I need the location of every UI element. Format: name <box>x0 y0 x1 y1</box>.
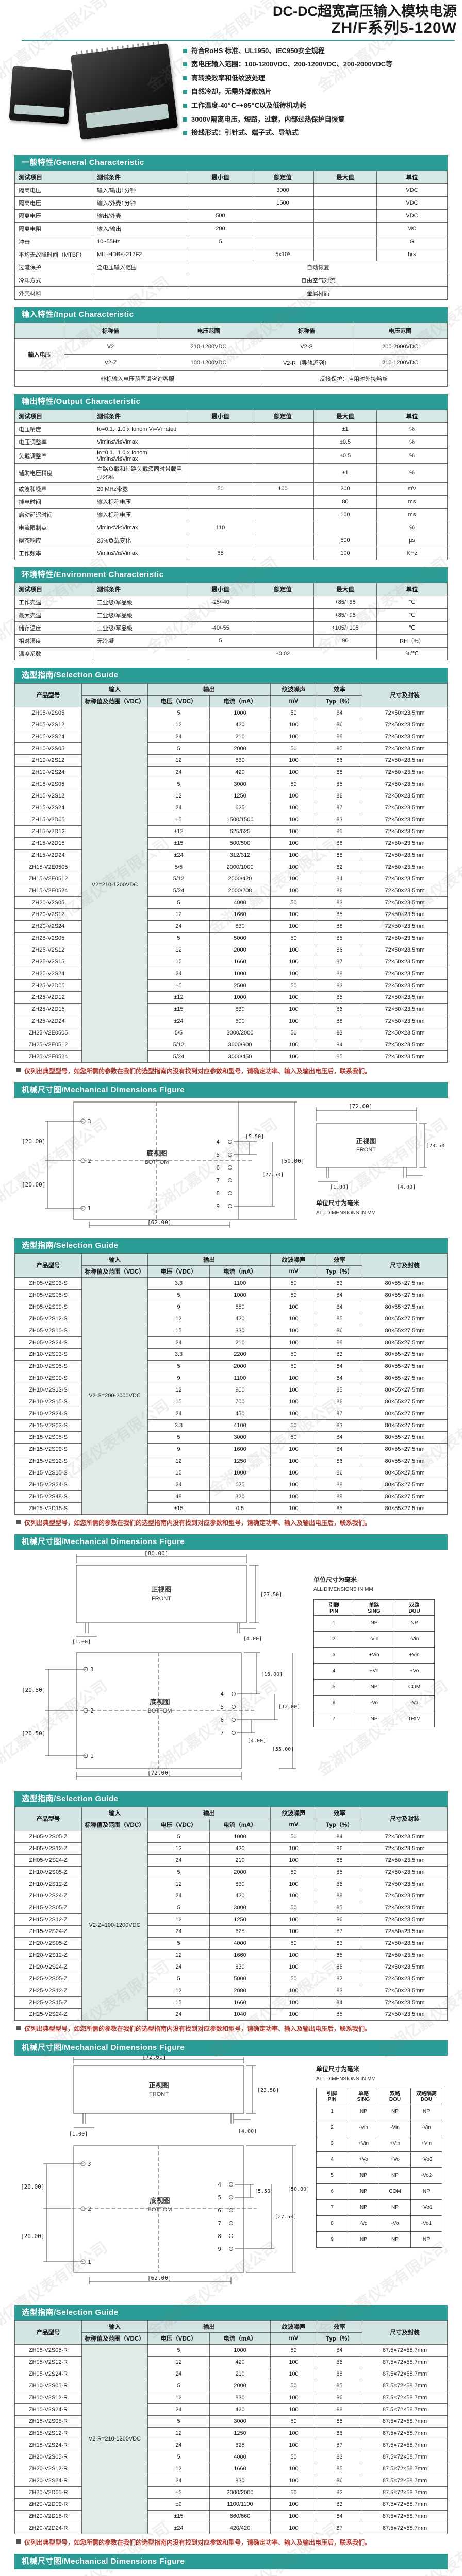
table-cell: NP <box>379 2199 411 2215</box>
col-header: 产品型号 <box>15 2320 82 2344</box>
table-cell: 200 <box>314 482 377 495</box>
table-cell: ZH05-V2S24-S <box>15 1336 82 1348</box>
table-cell: 100 <box>271 2356 317 2368</box>
table-cell: 72×50×23.5mm <box>362 825 448 837</box>
table-row: ZH20-V2S24248301008872×50×23.5mm <box>15 920 448 932</box>
svg-text:[62.00]: [62.00] <box>147 1219 171 1226</box>
mech-figure-4: [58.70] 单位尺寸为毫米 ALL DIMENSIONS IN MM ZHX… <box>14 2569 448 2576</box>
table-row: V2-Z100-1200VDCV2-R（导轨系列）210-1200VDC <box>15 354 448 370</box>
table-cell: 1 <box>314 1615 354 1631</box>
table-cell: 100 <box>271 944 317 956</box>
table-row: ZH15-V2D05±51500/15001008372×50×23.5mm <box>15 814 448 825</box>
table-cell: ZH15-V2S12-Z <box>15 1913 82 1925</box>
table-cell: 100 <box>271 1467 317 1479</box>
feature-text: 工作温度-40℃~+85℃以及低待机功耗 <box>191 101 306 110</box>
table-cell: 72×50×23.5mm <box>362 1842 448 1854</box>
svg-text:3: 3 <box>90 1666 94 1673</box>
table-row: 工作频率Vimin≤Vi≤Vimax65100KHz <box>15 547 448 560</box>
table-row: ZH05-V2S24-S242101008880×55×27.5mm <box>15 1336 448 1348</box>
table-cell: 210-1200VDC <box>353 354 448 370</box>
section-title: 环境特性/Environment Characteristic <box>22 570 164 579</box>
table-cell: ZH25-V2D12 <box>15 991 82 1003</box>
table-cell: +Vo <box>379 2151 411 2167</box>
table-cell: ±1 <box>314 463 377 482</box>
table-cell: 外壳材料 <box>15 286 93 299</box>
table-cell: 87 <box>317 1925 362 1937</box>
table-cell: % <box>377 521 448 534</box>
col-header: 标称值及范围（VDC） <box>82 2332 148 2344</box>
table-row: 冲击10~55Hz5G <box>15 235 448 248</box>
table-cell: KHz <box>377 547 448 560</box>
table-cell: ZH20-V2S12-Z <box>15 1949 82 1961</box>
table-cell: 50 <box>271 1419 317 1431</box>
table-cell: 3.3 <box>148 1419 210 1431</box>
table-cell: 1100/1100 <box>210 2498 271 2510</box>
table-cell: V2=210-1200VDC <box>82 707 148 1062</box>
table-cell: 1660 <box>210 1949 271 1961</box>
table-cell: 320 <box>210 1490 271 1502</box>
svg-text:[4.00]: [4.00] <box>243 1636 262 1642</box>
svg-text:ALL DIMENSIONS IN MM: ALL DIMENSIONS IN MM <box>316 1210 376 1216</box>
table-cell: 20 MHz带宽 <box>93 482 189 495</box>
table-row: 4+Vo+Vo <box>314 1663 435 1679</box>
table-row: 纹波和噪声20 MHz带宽50100200mV <box>15 482 448 495</box>
col-header: 最大值 <box>314 410 377 422</box>
section-header-mechanical: 机械尺寸图/Mechanical Dimensions Figure <box>14 1082 448 1098</box>
mech-figure-3: [72.00] [23.50] 正视图 FRONT [1.00] [4.00] … <box>14 2056 448 2298</box>
table-cell: ±5 <box>148 979 210 991</box>
table-cell: ±0.5 <box>314 435 377 448</box>
table-cell: 100 <box>271 1842 317 1854</box>
table-cell: 420 <box>210 766 271 778</box>
table-row: 隔离电阻输入/输出200MΩ <box>15 222 448 235</box>
table-row: ZH15-V2S12-R1212501008687.5×72×58.7mm <box>15 2427 448 2439</box>
table-cell: 87.5×72×58.7mm <box>362 2356 448 2368</box>
table-row: ZH20-V2S24-R248301008687.5×72×58.7mm <box>15 2475 448 2486</box>
table-header-row: 产品型号 输入 输出 纹波噪声 效率 尺寸及封装 <box>15 2320 448 2332</box>
table-cell: 72×50×23.5mm <box>362 742 448 754</box>
table-cell: ZH15-V2S12-S <box>15 1455 82 1467</box>
table-row: 隔离电压输入/输出1分钟3000VDC <box>15 183 448 196</box>
table-cell: 100 <box>271 1985 317 1996</box>
table-cell: V2-Z <box>64 354 157 370</box>
table-cell: 87.5×72×58.7mm <box>362 2427 448 2439</box>
table-cell <box>189 248 252 261</box>
table-cell: 625 <box>210 802 271 814</box>
table-cell: 88 <box>317 1336 362 1348</box>
table-cell: 87.5×72×58.7mm <box>362 2486 448 2498</box>
table-row: ZH20-V2D09-R±91100/11001008387.5×72×58.7… <box>15 2498 448 2510</box>
table-cell: 84 <box>317 1360 362 1372</box>
svg-text:7: 7 <box>220 1730 224 1736</box>
table-cell: 相对湿度 <box>15 634 93 647</box>
col-header: 单位 <box>377 583 448 596</box>
table-cell: ℃ <box>377 621 448 634</box>
table-cell: 12 <box>148 1949 210 1961</box>
col-header: 纹波噪声 <box>271 2320 317 2332</box>
table-cell: ±15 <box>148 1502 210 1514</box>
table-cell: 50 <box>271 1937 317 1949</box>
section-title: 一般特性/General Characteristic <box>22 158 144 167</box>
table-header-row: 测试项目 测试条件 最小值 额定值 最大值 单位 <box>15 171 448 183</box>
svg-text:6: 6 <box>220 1717 224 1723</box>
col-header: 测试条件 <box>93 410 189 422</box>
table-cell <box>252 435 314 448</box>
col-header: 输入 <box>82 1807 148 1819</box>
table-cell: G <box>377 235 448 248</box>
table-cell: -25/-40 <box>189 596 252 608</box>
table-cell <box>189 422 252 435</box>
table-cell: 83 <box>317 1348 362 1360</box>
table-cell <box>252 448 314 463</box>
svg-text:4: 4 <box>218 2181 221 2188</box>
table-cell: 12 <box>148 2427 210 2439</box>
table-cell: 50 <box>271 896 317 908</box>
table-row: ZH25-V2D15±158301008672×50×23.5mm <box>15 1003 448 1015</box>
table-cell: 无冷凝 <box>93 634 189 647</box>
feature-text: 高转换效率和低纹波处理 <box>191 74 265 82</box>
table-row: ZH25-V2S15-Z1516601008472×50×23.5mm <box>15 1996 448 2008</box>
environment-characteristics-table: 测试项目 测试条件 最小值 额定值 最大值 单位 工作壳温工业级/军品级-25/… <box>14 583 448 660</box>
table-cell: 2000/2000 <box>210 2486 271 2498</box>
table-cell: +Vin <box>411 2136 442 2151</box>
table-cell: hrs <box>377 248 448 261</box>
table-cell: mV <box>377 482 448 495</box>
table-cell: 3000 <box>210 1902 271 1913</box>
table-cell: 500 <box>314 534 377 547</box>
table-cell: TRIM <box>394 1711 435 1727</box>
col-header: 标称值 <box>260 323 353 338</box>
selection-guide-table-4: 产品型号 输入 输出 纹波噪声 效率 尺寸及封装 标称值及范围（VDC） 电压（… <box>14 2320 448 2534</box>
svg-text:[80.00]: [80.00] <box>144 1550 168 1557</box>
table-cell: 100 <box>271 1878 317 1890</box>
general-characteristics-table: 测试项目 测试条件 最小值 额定值 最大值 单位 隔离电压输入/输出1分钟300… <box>14 171 448 300</box>
table-cell: 88 <box>317 849 362 861</box>
table-cell: 工业级/军品级 <box>93 596 189 608</box>
table-cell: 100 <box>271 1384 317 1396</box>
table-cell: 72×50×23.5mm <box>362 1015 448 1027</box>
table-cell: 72×50×23.5mm <box>362 1866 448 1878</box>
table-cell: 非标输入电压范围请咨询客服 <box>15 370 260 386</box>
feature-item: 接线形式：引针式、端子式、导轨式 <box>183 129 454 137</box>
table-cell: 50 <box>271 707 317 719</box>
col-header: 输出 <box>148 1253 271 1265</box>
table-row: ZH25-V2D24±245001008872×50×23.5mm <box>15 1015 448 1027</box>
table-cell: ZH05-V2S24-R <box>15 2368 82 2380</box>
table-cell: 72×50×23.5mm <box>362 861 448 873</box>
table-cell: 100 <box>271 2008 317 2020</box>
table-row: 平均无故障时间（MTBF）MIL-HDBK-217F25x10⁵hrs <box>15 248 448 261</box>
table-cell: 500/500 <box>210 837 271 849</box>
svg-text:9: 9 <box>218 2246 221 2252</box>
table-row: ZH10-V2S12-R128301008687.5×72×58.7mm <box>15 2392 448 2403</box>
table-cell: ZH05-V2S12-S <box>15 1313 82 1325</box>
section-header-environment: 环境特性/Environment Characteristic <box>14 567 448 583</box>
table-cell: 100 <box>271 1890 317 1902</box>
table-cell: ZH20-V2S24 <box>15 920 82 932</box>
input-characteristics-table: 标称值 电压范围 标称值 电压范围 输入电压V2210-1200VDCV2-S2… <box>14 323 448 387</box>
table-row: ZH05-V2S09-S95501008480×55×27.5mm <box>15 1301 448 1313</box>
table-cell: 50 <box>271 1348 317 1360</box>
table-row: 瞬态响应25%负载变化500µs <box>15 534 448 547</box>
datasheet-page: DC-DC超宽高压输入模块电源 ZH/F系列5-120W 符合RoHS 标准、U… <box>0 0 462 2576</box>
table-cell: 隔离电压 <box>15 183 93 196</box>
table-row: 2-Vin-Vin <box>314 1631 435 1647</box>
section-header-mechanical: 机械尺寸图/Mechanical Dimensions Figure <box>14 2040 448 2056</box>
table-cell: ZH15-V2S09-S <box>15 1443 82 1455</box>
table-cell: 330 <box>210 1325 271 1336</box>
table-cell: ZH25-V2D15 <box>15 1003 82 1015</box>
table-row: ZH15-V2E05055/52000/10001008272×50×23.5m… <box>15 861 448 873</box>
col-header: 输出 <box>148 2320 271 2332</box>
section-header-selection: 选型指南/Selection Guide <box>14 668 448 683</box>
table-cell: 5 <box>148 778 210 790</box>
table-cell: 84 <box>317 1372 362 1384</box>
table-cell: 830 <box>210 1961 271 1973</box>
table-cell: 72×50×23.5mm <box>362 1039 448 1050</box>
table-cell <box>93 286 189 299</box>
feature-item: 宽电压输入范围：100-1200VDC、200-1200VDC、200-2000… <box>183 60 454 69</box>
table-cell: RH（%） <box>377 634 448 647</box>
table-cell <box>189 183 252 196</box>
table-cell: 72×50×23.5mm <box>362 1878 448 1890</box>
col-header: mV <box>271 1819 317 1831</box>
table-cell: 72×50×23.5mm <box>362 1937 448 1949</box>
table-cell: ZH15-V2D12 <box>15 825 82 837</box>
col-header: 额定值 <box>252 171 314 183</box>
table-cell: 1040 <box>210 2008 271 2020</box>
table-row: 冷却方式自由空气对流 <box>15 274 448 286</box>
table-cell: ZH20-V2S24-Z <box>15 1961 82 1973</box>
table-cell: 100 <box>271 1455 317 1467</box>
table-cell: 2000 <box>210 742 271 754</box>
svg-text:2: 2 <box>88 2206 91 2212</box>
col-header: 最小值 <box>189 171 252 183</box>
table-row: 过流保护全电压输入范围自动恢复 <box>15 261 448 274</box>
table-cell: ZH05-V2S12-Z <box>15 1842 82 1854</box>
table-cell: 200-2000VDC <box>353 338 448 354</box>
table-cell: 83 <box>317 1937 362 1949</box>
table-cell: 87.5×72×58.7mm <box>362 2451 448 2463</box>
table-row: ZH20-V2S0554000508372×50×23.5mm <box>15 896 448 908</box>
table-cell: 1 <box>317 2104 348 2120</box>
table-cell: +Vin <box>348 2136 379 2151</box>
section-mechanical-3: 机械尺寸图/Mechanical Dimensions Figure [72.0… <box>14 2040 448 2298</box>
table-row: ZH10-V2S05-S52000508480×55×27.5mm <box>15 1360 448 1372</box>
table-cell: 15 <box>148 1996 210 2008</box>
table-cell: 3 <box>317 2136 348 2151</box>
table-cell: 掉电时间 <box>15 495 93 508</box>
table-cell: 86 <box>317 1961 362 1973</box>
table-cell: 输入/输出 <box>93 222 189 235</box>
svg-text:[72.00]: [72.00] <box>142 2056 166 2060</box>
table-cell: ±24 <box>148 849 210 861</box>
table-cell: 625 <box>210 1925 271 1937</box>
table-cell: MIL-HDBK-217F2 <box>93 248 189 261</box>
table-cell: 2000 <box>210 944 271 956</box>
table-cell: ZH20-V2S05 <box>15 896 82 908</box>
table-header-row: 测试项目 测试条件 最小值 额定值 最大值 单位 <box>15 410 448 422</box>
table-cell: 9 <box>148 1443 210 1455</box>
table-cell: ZH20-V2S12-R <box>15 2463 82 2475</box>
table-row: ZH25-V2S05-Z55000508272×50×23.5mm <box>15 1973 448 1985</box>
table-cell: 2000/208 <box>210 885 271 896</box>
table-cell: 72×50×23.5mm <box>362 1925 448 1937</box>
table-cell: ZH15-V2E0512 <box>15 873 82 885</box>
section-selection-guide-3: 选型指南/Selection Guide 产品型号 输入 输出 纹波噪声 效率 … <box>14 1791 448 2021</box>
table-cell: 50 <box>271 2380 317 2392</box>
table-cell <box>189 448 252 463</box>
col-header: 标称值 <box>64 323 157 338</box>
table-cell: ZH20-V2D05-R <box>15 2486 82 2498</box>
table-cell: ZH25-V2E0505 <box>15 1027 82 1039</box>
table-cell: COM <box>379 2183 411 2199</box>
table-cell: ±1 <box>314 422 377 435</box>
table-cell: 84 <box>317 873 362 885</box>
section-input: 输入特性/Input Characteristic 标称值 电压范围 标称值 电… <box>14 307 448 387</box>
table-cell: 500 <box>189 209 252 222</box>
col-header: 标称值及范围（VDC） <box>82 1819 148 1831</box>
table-cell: 24 <box>148 2439 210 2451</box>
table-cell: 100 <box>271 766 317 778</box>
table-cell: 86 <box>317 1913 362 1925</box>
table-cell: 84 <box>317 1289 362 1301</box>
table-row: ZH20-V2D15-R±15660/6601008487.5×72×58.7m… <box>15 2510 448 2522</box>
section-selection-guide-2: 选型指南/Selection Guide 产品型号 输入 输出 纹波噪声 效率 … <box>14 1238 448 1515</box>
col-header: 双路 DOU <box>379 2088 411 2104</box>
table-row: 储存温度工业级/军品级-40/-55+105/+105℃ <box>15 621 448 634</box>
table-cell: 210 <box>210 1336 271 1348</box>
dimension-drawing: 3 2 1 [20.00] [20.00] 4 5 6 7 8 9 [5.50]… <box>14 1098 445 1231</box>
table-cell: 15 <box>148 1467 210 1479</box>
table-cell: 85 <box>317 908 362 920</box>
table-row: ZH15-V2S12-S1212501008680×55×27.5mm <box>15 1455 448 1467</box>
table-cell: 2500 <box>210 979 271 991</box>
table-cell <box>314 235 377 248</box>
table-cell: 210 <box>210 731 271 742</box>
table-cell: 110 <box>189 521 252 534</box>
table-cell: 12 <box>148 1878 210 1890</box>
module-pins-decor <box>76 41 162 54</box>
table-cell: ZH10-V2S24-R <box>15 2403 82 2415</box>
table-row: ZH15-V2S24-S246251008880×55×27.5mm <box>15 1479 448 1490</box>
table-cell: VDC <box>377 209 448 222</box>
table-cell: 72×50×23.5mm <box>362 1902 448 1913</box>
svg-text:[1.00]: [1.00] <box>69 2131 88 2137</box>
table-cell: 86 <box>317 790 362 802</box>
table-cell: 830 <box>210 920 271 932</box>
table-cell: ZH15-V2S24-S <box>15 1479 82 1490</box>
square-bullet-icon <box>183 49 187 53</box>
table-cell: NP <box>411 2231 442 2247</box>
table-row: ZH15-V2S12-Z1212501008672×50×23.5mm <box>15 1913 448 1925</box>
table-cell: % <box>377 463 448 482</box>
col-header: Typ（%） <box>317 1265 362 1277</box>
table-cell: 80×55×27.5mm <box>362 1431 448 1443</box>
table-cell: 83 <box>317 814 362 825</box>
table-row: ZH15-V2S09-S916001008480×55×27.5mm <box>15 1443 448 1455</box>
table-cell: 72×50×23.5mm <box>362 932 448 944</box>
table-cell: 24 <box>148 1408 210 1419</box>
table-cell: 87.5×72×58.7mm <box>362 2475 448 2486</box>
table-cell: V2-S <box>260 338 353 354</box>
table-cell: 100 <box>271 1301 317 1313</box>
table-cell: -Vin <box>379 2120 411 2136</box>
table-row: ZH25-V2E05055/53000/2000508372×50×23.5mm <box>15 1027 448 1039</box>
square-bullet-icon <box>16 1068 21 1072</box>
svg-text:ALL DIMENSIONS IN MM: ALL DIMENSIONS IN MM <box>313 1587 373 1592</box>
svg-text:1: 1 <box>88 2259 91 2265</box>
table-cell: 2000/420 <box>210 873 271 885</box>
table-cell: 80×55×27.5mm <box>362 1301 448 1313</box>
table-cell: 85 <box>317 1949 362 1961</box>
svg-text:[20.00]: [20.00] <box>21 2183 44 2190</box>
table-cell: 100 <box>271 956 317 968</box>
table-cell: 87.5×72×58.7mm <box>362 2522 448 2534</box>
page-header: DC-DC超宽高压输入模块电源 ZH/F系列5-120W 符合RoHS 标准、U… <box>0 0 462 148</box>
svg-text:[20.50]: [20.50] <box>22 1687 45 1693</box>
col-header: Typ（%） <box>317 2332 362 2344</box>
table-cell: 100 <box>314 508 377 521</box>
col-header: 额定值 <box>252 410 314 422</box>
col-header: 产品型号 <box>15 1807 82 1831</box>
table-row: 外壳材料金属材质 <box>15 286 448 299</box>
table-cell: 80×55×27.5mm <box>362 1289 448 1301</box>
table-cell: 12 <box>148 2356 210 2368</box>
table-row: 负载调整率Io=0.1...1.0 x Ionom Vimin≤Vi≤Vimax… <box>15 448 448 463</box>
svg-text:8: 8 <box>218 2233 221 2240</box>
table-cell: 24 <box>148 1479 210 1490</box>
table-cell: 72×50×23.5mm <box>362 1985 448 1996</box>
table-cell: 86 <box>317 885 362 896</box>
table-cell: µs <box>377 534 448 547</box>
table-row: 隔离电压输入/外壳1分钟1500VDC <box>15 196 448 209</box>
svg-text:5: 5 <box>218 2194 221 2201</box>
col-header: 测试项目 <box>15 410 93 422</box>
svg-text:1: 1 <box>88 1205 91 1212</box>
table-cell: 7 <box>314 1711 354 1727</box>
table-cell <box>252 534 314 547</box>
table-cell: 72×50×23.5mm <box>362 968 448 979</box>
section-title: 选型指南/Selection Guide <box>22 1241 119 1250</box>
table-cell: 87 <box>317 956 362 968</box>
table-cell: 1000 <box>210 707 271 719</box>
table-cell: 100 <box>271 873 317 885</box>
table-row: ZH10-V2S12128301008672×50×23.5mm <box>15 754 448 766</box>
table-row: ZH25-V2S121220001008672×50×23.5mm <box>15 944 448 956</box>
col-header: 输入 <box>82 1253 148 1265</box>
table-cell: 50 <box>271 979 317 991</box>
table-cell: 100 <box>271 2439 317 2451</box>
table-cell: 100 <box>271 825 317 837</box>
table-cell: NP <box>348 2167 379 2183</box>
table-cell: 0.5 <box>210 1502 271 1514</box>
table-cell: +85/+95 <box>314 608 377 621</box>
table-cell: 4000 <box>210 896 271 908</box>
table-cell: 72×50×23.5mm <box>362 873 448 885</box>
table-row: 6NPCOMNP <box>317 2183 442 2199</box>
table-row: ZH05-V2S24-Z242101008872×50×23.5mm <box>15 1854 448 1866</box>
table-cell: 72×50×23.5mm <box>362 731 448 742</box>
table-cell: 86 <box>317 2427 362 2439</box>
table-cell: 312/312 <box>210 849 271 861</box>
table-header-row: 产品型号 输入 输出 纹波噪声 效率 尺寸及封装 <box>15 1807 448 1819</box>
col-header: Typ（%） <box>317 1819 362 1831</box>
svg-text:[55.00]: [55.00] <box>272 1747 294 1752</box>
svg-text:[1.00]: [1.00] <box>72 1639 91 1645</box>
table-cell: 1000 <box>210 991 271 1003</box>
table-cell: +Vin <box>354 1647 394 1663</box>
